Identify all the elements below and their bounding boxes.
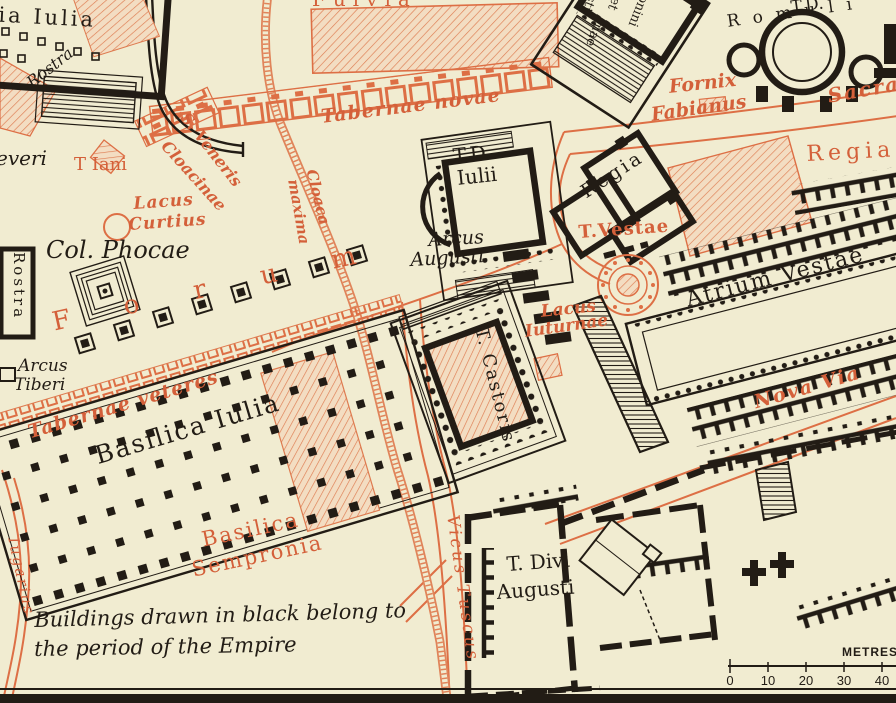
label-arcus-tiberi-1: Arcus bbox=[18, 358, 68, 375]
label-t-divi-augusti-2: Augusti bbox=[496, 577, 575, 602]
label-rostra-west: Rostra bbox=[11, 252, 26, 320]
forum-map: ria Iulia Rostra Fulvia Tabernae novae S… bbox=[0, 0, 896, 703]
scale-tick-20: 20 bbox=[793, 674, 819, 687]
t-vestae-temple bbox=[598, 255, 658, 315]
label-arcus-tiberi-2: Tiberi bbox=[14, 377, 65, 394]
scale-tick-10: 10 bbox=[755, 674, 781, 687]
label-fulvia: Fulvia bbox=[312, 0, 417, 9]
scale-bar bbox=[728, 659, 896, 673]
scale-tick-0: 0 bbox=[717, 674, 743, 687]
scale-unit-label: METRES bbox=[842, 646, 896, 658]
label-td-iulii-2: Iulii bbox=[456, 164, 498, 188]
label-arcus-augusti-2: Augusti bbox=[410, 247, 485, 270]
label-lacus-curtius-1: Lacus bbox=[133, 192, 194, 213]
label-t-divi-augusti-1: T. Divi bbox=[506, 550, 570, 574]
map-note-line2: the period of the Empire bbox=[34, 634, 297, 660]
scale-tick-30: 30 bbox=[831, 674, 857, 687]
arcus-tiberi-marker bbox=[0, 368, 15, 381]
label-t-iani: T Iani bbox=[74, 156, 127, 174]
label-severi-fragment: everi bbox=[0, 148, 47, 168]
label-curia-iulia: ria Iulia bbox=[0, 4, 97, 31]
scale-tick-40: 40 bbox=[869, 674, 895, 687]
label-regia-orange: Regia bbox=[806, 139, 896, 166]
label-col-phocae: Col. Phocae bbox=[46, 238, 190, 262]
td-iulii-temple bbox=[413, 122, 573, 302]
